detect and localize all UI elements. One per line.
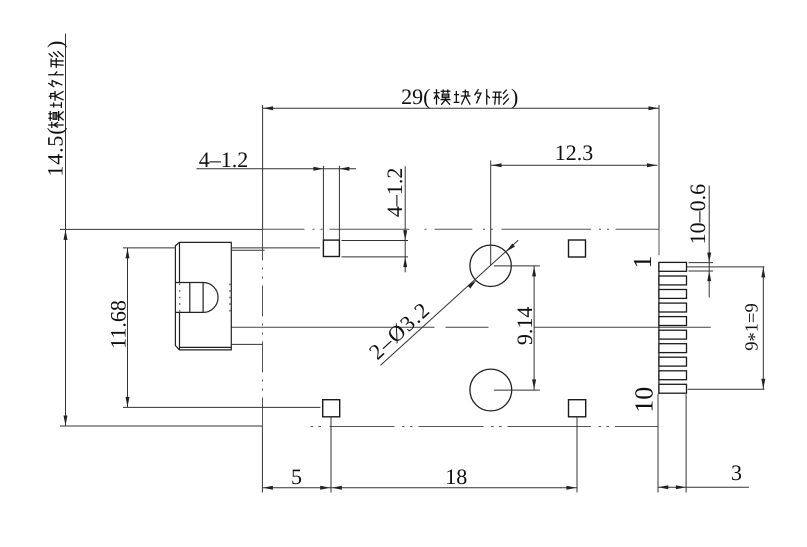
svg-text:12.3: 12.3: [555, 140, 594, 165]
svg-text:10: 10: [630, 387, 659, 413]
svg-text:4–1.2: 4–1.2: [382, 168, 407, 218]
svg-text:): ): [43, 41, 68, 48]
svg-text:4–1.2: 4–1.2: [199, 147, 249, 172]
svg-text:11.68: 11.68: [106, 300, 131, 349]
svg-text:29(: 29(: [401, 84, 430, 109]
svg-text:): ): [511, 84, 518, 109]
svg-text:14.5(: 14.5(: [43, 127, 68, 177]
svg-text:5: 5: [291, 464, 302, 489]
svg-text:10–0.6: 10–0.6: [685, 184, 710, 245]
svg-text:1: 1: [628, 256, 657, 269]
svg-text:3: 3: [731, 460, 742, 485]
svg-text:18: 18: [445, 464, 467, 489]
svg-text:9.14: 9.14: [512, 307, 537, 346]
svg-text:9*1=9: 9*1=9: [743, 303, 766, 350]
